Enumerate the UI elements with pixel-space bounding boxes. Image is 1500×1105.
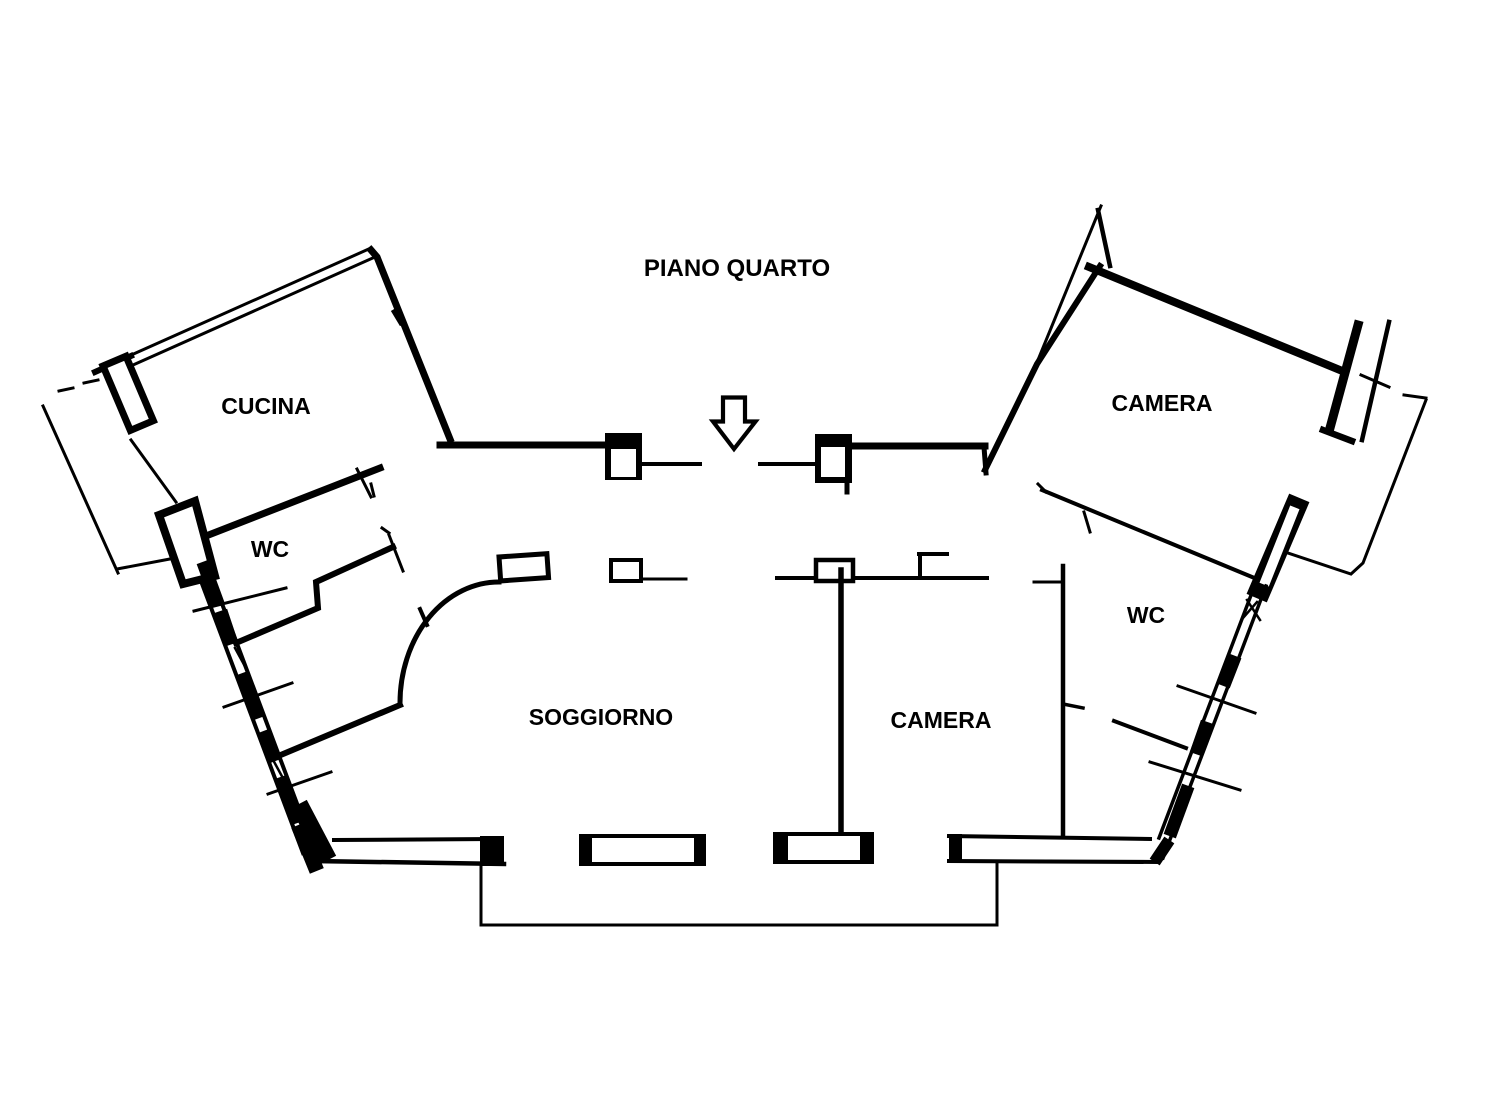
svg-text:WC: WC (251, 536, 289, 562)
svg-text:CAMERA: CAMERA (891, 707, 992, 733)
svg-text:CUCINA: CUCINA (221, 393, 310, 419)
svg-text:CAMERA: CAMERA (1112, 390, 1213, 416)
svg-text:SOGGIORNO: SOGGIORNO (529, 704, 673, 730)
svg-text:PIANO QUARTO: PIANO QUARTO (644, 255, 830, 282)
svg-text:WC: WC (1127, 602, 1165, 628)
